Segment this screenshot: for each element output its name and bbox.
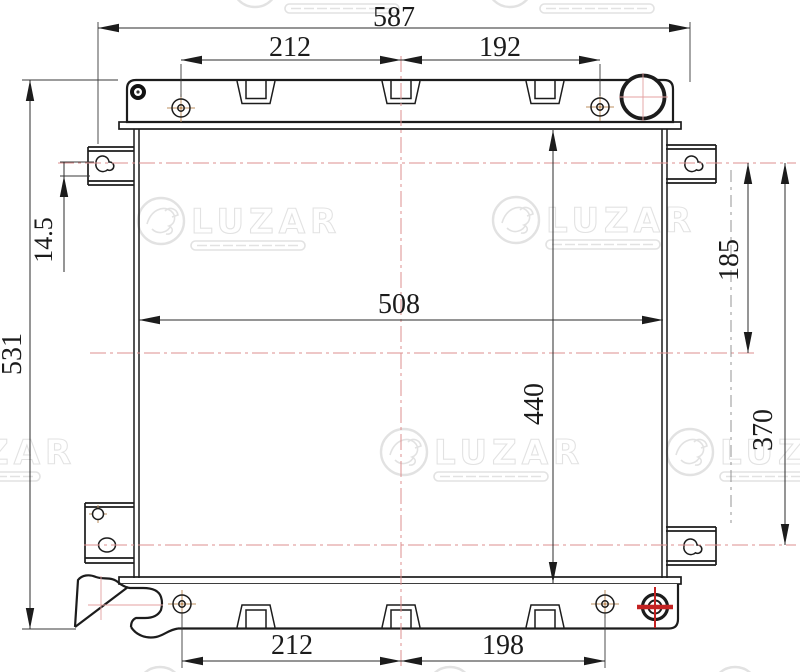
mounting-bracket-bottom-left [85,503,134,563]
radiator-technical-drawing: LUZAR [0,0,800,672]
bracket-hole-small [93,509,104,520]
mounting-bracket-bottom-right [666,527,716,565]
top-notch-right [526,81,565,104]
bracket-keyhole-top-left [96,156,114,172]
dim-label-top-left-span: 212 [269,32,311,63]
dim-label-bracket-offset: 14.5 [29,217,58,263]
dim-label-right-lower-span: 370 [748,409,779,451]
top-tank [119,76,681,130]
bracket-keyhole-top-right [685,156,703,172]
extension-lines [22,22,731,668]
top-notch-left [237,81,276,104]
screw-hole-top-left [167,94,195,122]
dimension-lines [26,24,789,665]
dim-label-overall-width: 587 [373,2,415,33]
drawing-canvas: LUZAR [0,0,800,672]
dim-label-right-upper-span: 185 [714,239,745,281]
mounting-bracket-top-right [666,145,716,183]
dim-label-bottom-right-span: 198 [482,630,524,661]
screw-hole-top-right [586,93,614,121]
dim-label-core-height: 440 [519,383,550,425]
dim-label-bottom-left-span: 212 [271,630,313,661]
dim-label-top-right-span: 192 [479,32,521,63]
dim-label-core-width: 508 [378,289,420,320]
centerlines [58,56,796,666]
bottom-notch-right [526,605,565,628]
bracket-keyhole-bottom-right [684,539,702,555]
bottom-tank [75,575,681,637]
mounting-bracket-top-left [88,147,134,185]
dim-label-overall-height: 531 [0,333,28,375]
bottom-notch-left [237,605,276,628]
